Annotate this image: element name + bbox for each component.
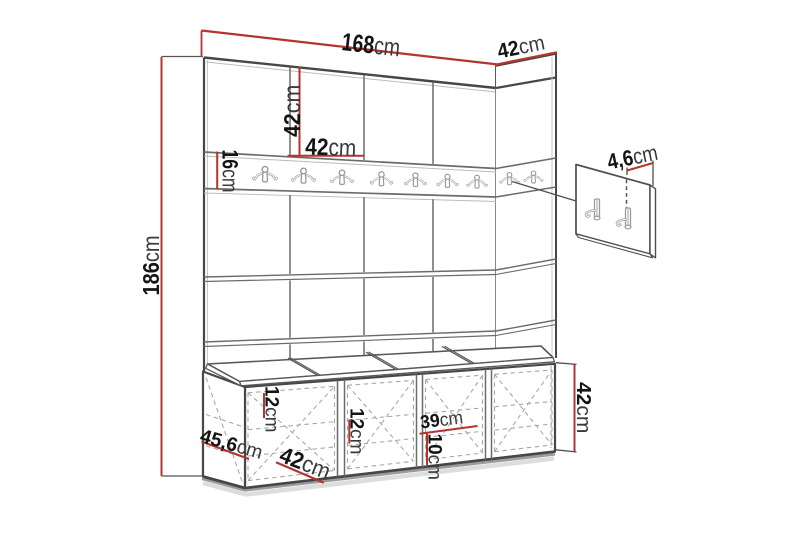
svg-text:16cm: 16cm [217, 150, 241, 193]
svg-text:12cm: 12cm [346, 408, 367, 454]
svg-text:42cm: 42cm [572, 382, 594, 433]
svg-text:42cm: 42cm [305, 133, 357, 161]
svg-text:42cm: 42cm [279, 85, 305, 137]
svg-text:12cm: 12cm [261, 386, 282, 432]
svg-text:186cm: 186cm [138, 235, 165, 295]
svg-text:10cm: 10cm [424, 434, 445, 480]
